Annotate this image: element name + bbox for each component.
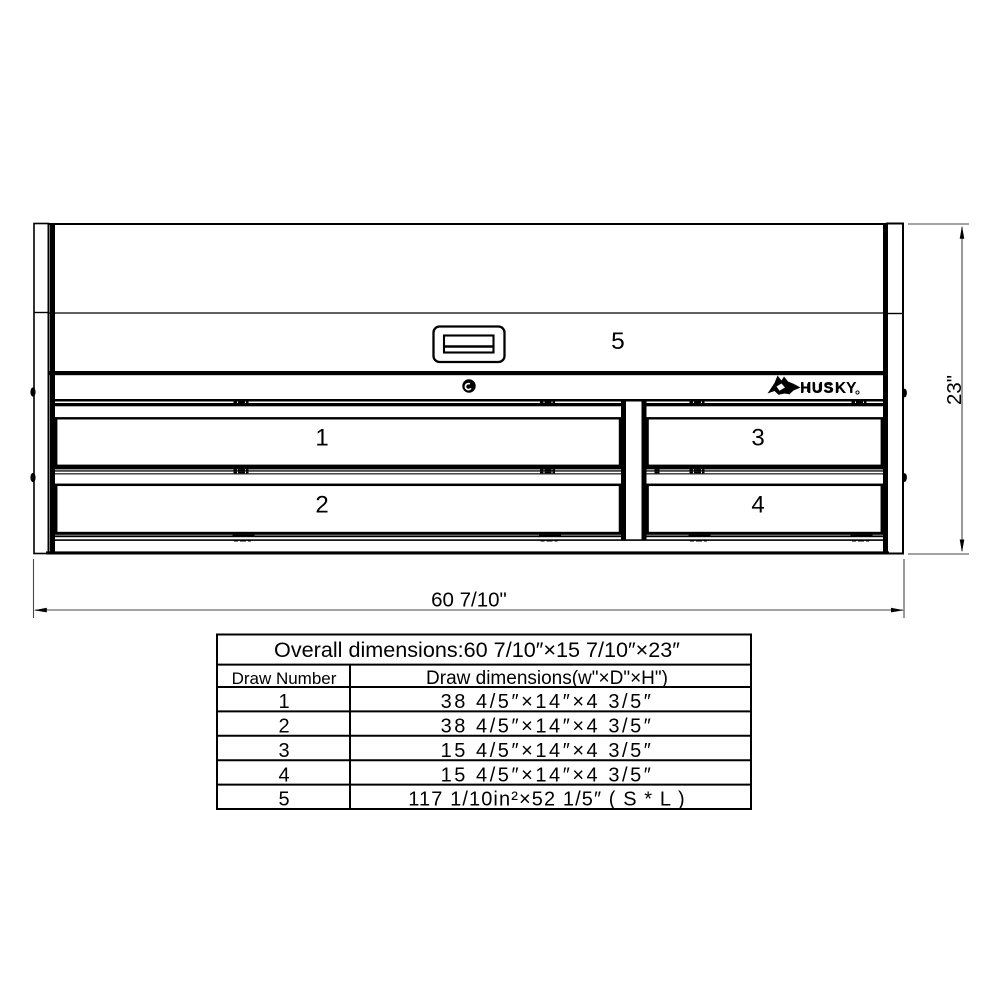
- svg-text:23": 23": [943, 375, 966, 405]
- svg-text:3: 3: [751, 425, 764, 452]
- svg-text:1: 1: [315, 425, 328, 452]
- svg-text:38 4/5″×14″×4 3/5″: 38 4/5″×14″×4 3/5″: [441, 691, 654, 713]
- svg-text:Draw dimensions(w"×D"×H"): Draw dimensions(w"×D"×H"): [426, 668, 668, 689]
- svg-text:Draw Number: Draw Number: [232, 669, 337, 688]
- svg-text:2: 2: [315, 492, 328, 519]
- svg-text:2: 2: [278, 716, 289, 738]
- svg-text:S: S: [824, 381, 832, 395]
- svg-text:4: 4: [278, 764, 289, 786]
- svg-text:5: 5: [278, 789, 289, 811]
- svg-text:3: 3: [278, 740, 289, 762]
- svg-text:117 1/10in²×52 1/5″ ( S * L ): 117 1/10in²×52 1/5″ ( S * L ): [408, 789, 685, 811]
- svg-text:U: U: [813, 381, 822, 395]
- svg-text:Overall dimensions:60 7/10″×15: Overall dimensions:60 7/10″×15 7/10″×23″: [274, 637, 680, 662]
- svg-text:15 4/5″×14″×4 3/5″: 15 4/5″×14″×4 3/5″: [441, 764, 654, 786]
- svg-text:38 4/5″×14″×4 3/5″: 38 4/5″×14″×4 3/5″: [441, 716, 654, 738]
- svg-text:15 4/5″×14″×4 3/5″: 15 4/5″×14″×4 3/5″: [441, 740, 654, 762]
- svg-text:60 7/10": 60 7/10": [431, 589, 507, 612]
- svg-text:Y: Y: [847, 381, 855, 395]
- svg-text:K: K: [836, 381, 845, 395]
- svg-text:4: 4: [751, 492, 764, 519]
- svg-text:5: 5: [611, 328, 625, 355]
- svg-text:1: 1: [278, 691, 289, 713]
- svg-text:H: H: [801, 381, 810, 395]
